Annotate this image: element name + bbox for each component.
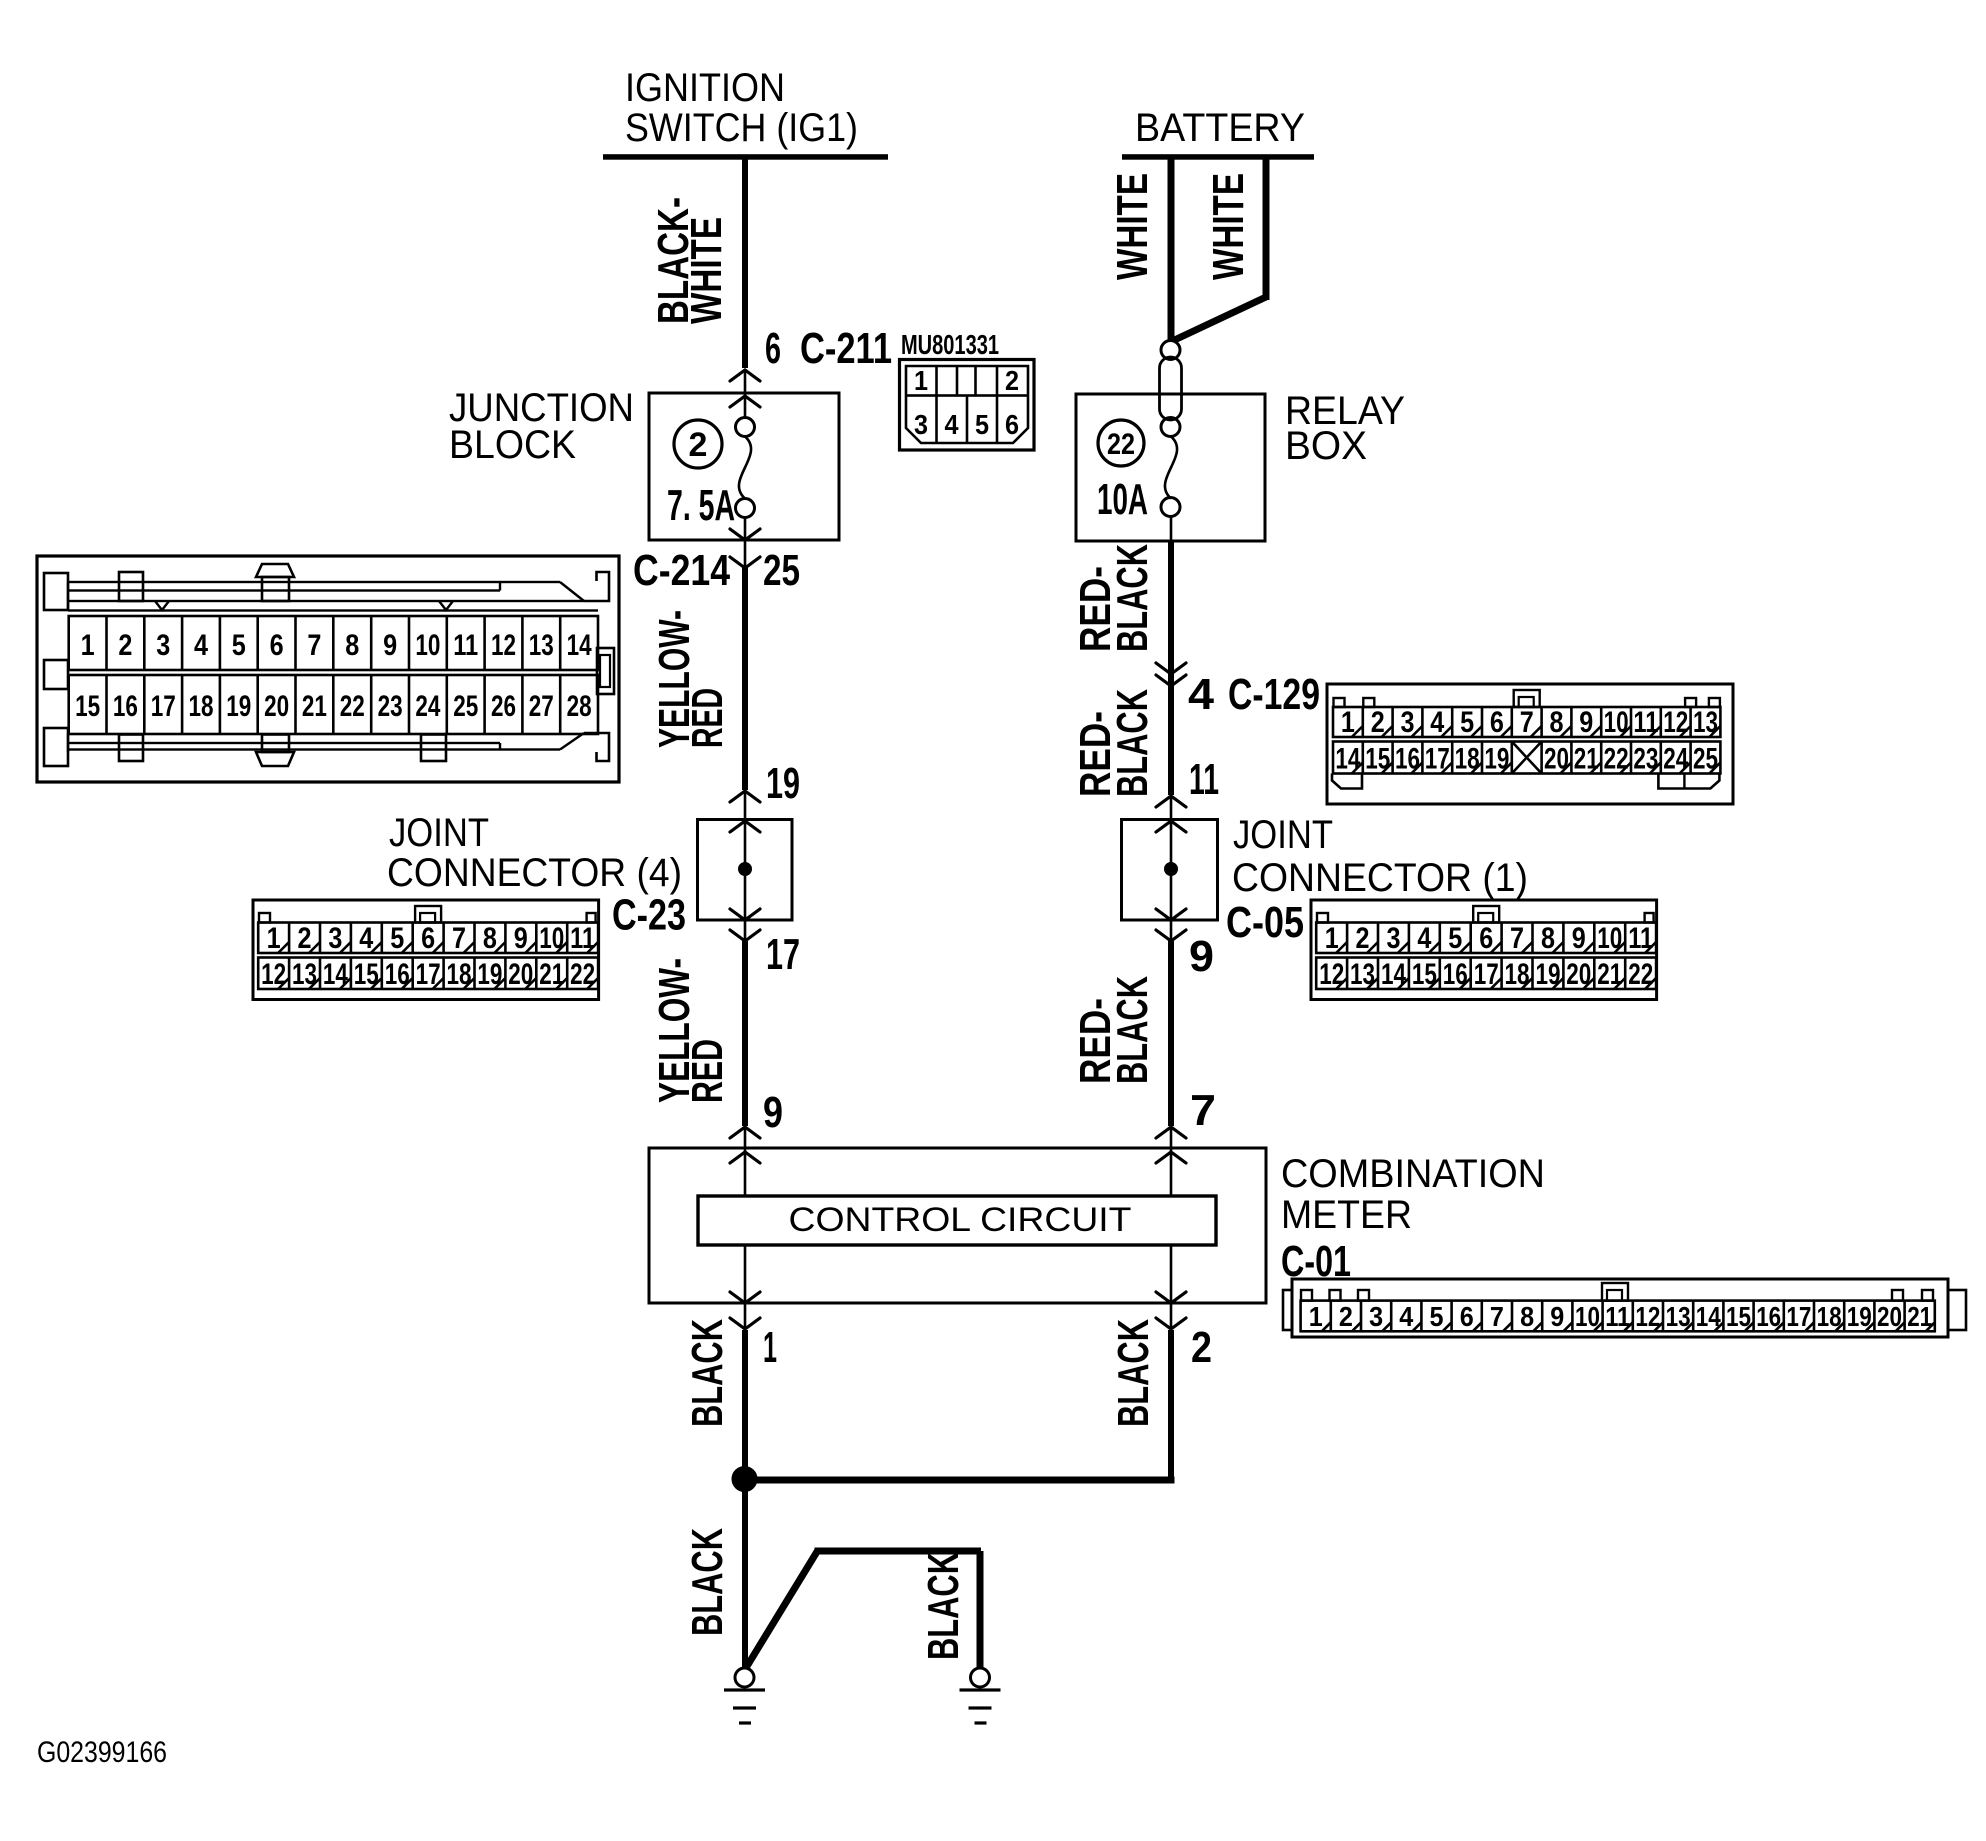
svg-text:9: 9 <box>1550 1301 1564 1332</box>
svg-text:JOINT: JOINT <box>1233 813 1333 857</box>
svg-text:22: 22 <box>340 690 365 723</box>
svg-text:2: 2 <box>1371 706 1385 739</box>
svg-text:IGNITION: IGNITION <box>625 66 785 110</box>
svg-text:19: 19 <box>226 690 251 723</box>
svg-text:WHITE: WHITE <box>1108 173 1157 280</box>
svg-text:9: 9 <box>1189 932 1214 981</box>
svg-text:12: 12 <box>1663 706 1688 739</box>
svg-text:1: 1 <box>763 1323 777 1372</box>
svg-text:JOINT: JOINT <box>389 811 489 855</box>
svg-text:7: 7 <box>307 629 321 662</box>
svg-text:MU801331: MU801331 <box>901 329 999 360</box>
svg-text:4: 4 <box>1188 670 1215 719</box>
svg-text:COMBINATION: COMBINATION <box>1281 1152 1545 1196</box>
svg-text:20: 20 <box>264 690 289 723</box>
svg-text:BLOCK: BLOCK <box>449 423 576 467</box>
svg-text:9: 9 <box>1579 706 1593 739</box>
svg-text:2: 2 <box>1005 365 1019 396</box>
svg-text:BLACK: BLACK <box>1109 1319 1158 1427</box>
svg-text:1: 1 <box>1341 706 1355 739</box>
svg-text:24: 24 <box>1663 743 1688 776</box>
svg-text:27: 27 <box>529 690 554 723</box>
svg-text:20: 20 <box>1544 743 1569 776</box>
svg-text:1: 1 <box>914 365 928 396</box>
svg-text:17: 17 <box>151 690 176 723</box>
svg-text:7: 7 <box>1190 1086 1216 1135</box>
svg-text:9: 9 <box>514 922 528 955</box>
svg-text:BLACK: BLACK <box>683 1528 732 1636</box>
svg-text:CONNECTOR (4): CONNECTOR (4) <box>387 851 682 895</box>
svg-text:8: 8 <box>483 922 497 955</box>
svg-text:BATTERY: BATTERY <box>1135 106 1305 150</box>
svg-text:8: 8 <box>1541 922 1555 955</box>
svg-text:1: 1 <box>1309 1301 1323 1332</box>
svg-text:4: 4 <box>359 922 373 955</box>
svg-text:C-211: C-211 <box>800 324 892 373</box>
svg-text:6: 6 <box>270 629 284 662</box>
svg-text:1: 1 <box>81 629 95 662</box>
svg-text:CONTROL CIRCUIT: CONTROL CIRCUIT <box>789 1201 1132 1239</box>
svg-text:5: 5 <box>1430 1301 1444 1332</box>
svg-text:G02399166: G02399166 <box>37 1736 167 1769</box>
svg-text:9: 9 <box>1572 922 1586 955</box>
svg-text:7: 7 <box>1490 1301 1504 1332</box>
svg-text:10A: 10A <box>1097 475 1148 524</box>
svg-text:3: 3 <box>328 922 342 955</box>
svg-text:2: 2 <box>1339 1301 1353 1332</box>
svg-text:6: 6 <box>1490 706 1504 739</box>
svg-text:5: 5 <box>1460 706 1474 739</box>
svg-text:12: 12 <box>491 629 516 662</box>
svg-text:BLACK: BLACK <box>919 1552 968 1660</box>
svg-text:RED: RED <box>683 1039 732 1103</box>
svg-text:4: 4 <box>945 409 959 440</box>
svg-text:15: 15 <box>75 690 100 723</box>
svg-text:5: 5 <box>390 922 404 955</box>
svg-text:19: 19 <box>1484 743 1509 776</box>
svg-text:23: 23 <box>1633 743 1658 776</box>
svg-text:5: 5 <box>232 629 246 662</box>
svg-text:18: 18 <box>189 690 214 723</box>
svg-text:8: 8 <box>345 629 359 662</box>
svg-text:24: 24 <box>415 690 440 723</box>
svg-text:16: 16 <box>1395 743 1420 776</box>
svg-text:BLACK: BLACK <box>683 1319 732 1427</box>
svg-text:9: 9 <box>763 1088 783 1137</box>
svg-text:14: 14 <box>567 629 592 662</box>
svg-text:21: 21 <box>302 690 327 723</box>
svg-text:3: 3 <box>156 629 170 662</box>
svg-text:23: 23 <box>378 690 403 723</box>
svg-text:11: 11 <box>1189 755 1219 804</box>
svg-text:7: 7 <box>1520 706 1534 739</box>
svg-text:BLACK: BLACK <box>1108 976 1157 1084</box>
svg-text:WHITE: WHITE <box>682 217 731 324</box>
svg-text:1: 1 <box>1325 922 1339 955</box>
svg-text:5: 5 <box>975 409 989 440</box>
svg-text:21: 21 <box>1574 743 1599 776</box>
svg-text:26: 26 <box>491 690 516 723</box>
svg-text:6: 6 <box>1460 1301 1474 1332</box>
svg-text:22: 22 <box>1107 428 1135 461</box>
svg-text:25: 25 <box>763 546 800 595</box>
svg-text:7. 5A: 7. 5A <box>667 481 735 530</box>
svg-text:4: 4 <box>194 629 208 662</box>
svg-text:17: 17 <box>766 930 800 979</box>
svg-text:6: 6 <box>1479 922 1493 955</box>
svg-text:C-129: C-129 <box>1228 670 1320 719</box>
svg-text:22: 22 <box>1604 743 1629 776</box>
svg-text:25: 25 <box>453 690 478 723</box>
svg-text:BLACK: BLACK <box>1108 544 1157 652</box>
svg-text:6: 6 <box>421 922 435 955</box>
svg-text:1: 1 <box>267 922 281 955</box>
svg-text:6: 6 <box>765 324 781 373</box>
svg-text:7: 7 <box>452 922 466 955</box>
svg-text:6: 6 <box>1005 409 1019 440</box>
svg-text:2: 2 <box>298 922 312 955</box>
svg-text:9: 9 <box>383 629 397 662</box>
svg-text:25: 25 <box>1693 743 1718 776</box>
svg-text:2: 2 <box>1191 1323 1212 1372</box>
svg-text:3: 3 <box>1369 1301 1383 1332</box>
svg-text:13: 13 <box>529 629 554 662</box>
svg-text:8: 8 <box>1520 1301 1534 1332</box>
svg-text:5: 5 <box>1448 922 1462 955</box>
svg-text:18: 18 <box>1455 743 1480 776</box>
svg-text:3: 3 <box>914 409 928 440</box>
svg-text:10: 10 <box>1604 706 1629 739</box>
svg-text:WHITE: WHITE <box>1204 173 1253 280</box>
svg-text:8: 8 <box>1550 706 1564 739</box>
svg-text:RED: RED <box>683 688 732 748</box>
svg-text:C-23: C-23 <box>612 891 686 940</box>
svg-text:15: 15 <box>1365 743 1390 776</box>
svg-text:CONNECTOR (1): CONNECTOR (1) <box>1232 856 1528 900</box>
svg-text:19: 19 <box>766 759 800 808</box>
svg-text:16: 16 <box>113 690 138 723</box>
svg-text:C-05: C-05 <box>1226 898 1304 947</box>
svg-text:11: 11 <box>453 629 478 662</box>
svg-text:SWITCH (IG1): SWITCH (IG1) <box>625 106 858 150</box>
svg-text:2: 2 <box>1356 922 1370 955</box>
svg-text:BLACK: BLACK <box>1108 689 1157 797</box>
svg-text:13: 13 <box>1693 706 1718 739</box>
svg-text:11: 11 <box>1633 706 1658 739</box>
svg-text:4: 4 <box>1399 1301 1413 1332</box>
svg-text:2: 2 <box>689 426 708 464</box>
svg-text:3: 3 <box>1401 706 1415 739</box>
svg-text:METER: METER <box>1281 1193 1412 1237</box>
svg-text:2: 2 <box>118 629 132 662</box>
svg-text:14: 14 <box>1335 743 1360 776</box>
svg-text:BOX: BOX <box>1285 424 1367 468</box>
svg-text:10: 10 <box>415 629 440 662</box>
svg-text:7: 7 <box>1510 922 1524 955</box>
svg-text:4: 4 <box>1417 922 1431 955</box>
svg-text:17: 17 <box>1425 743 1450 776</box>
svg-text:28: 28 <box>567 690 592 723</box>
svg-text:C-214: C-214 <box>633 546 730 595</box>
svg-text:3: 3 <box>1387 922 1401 955</box>
